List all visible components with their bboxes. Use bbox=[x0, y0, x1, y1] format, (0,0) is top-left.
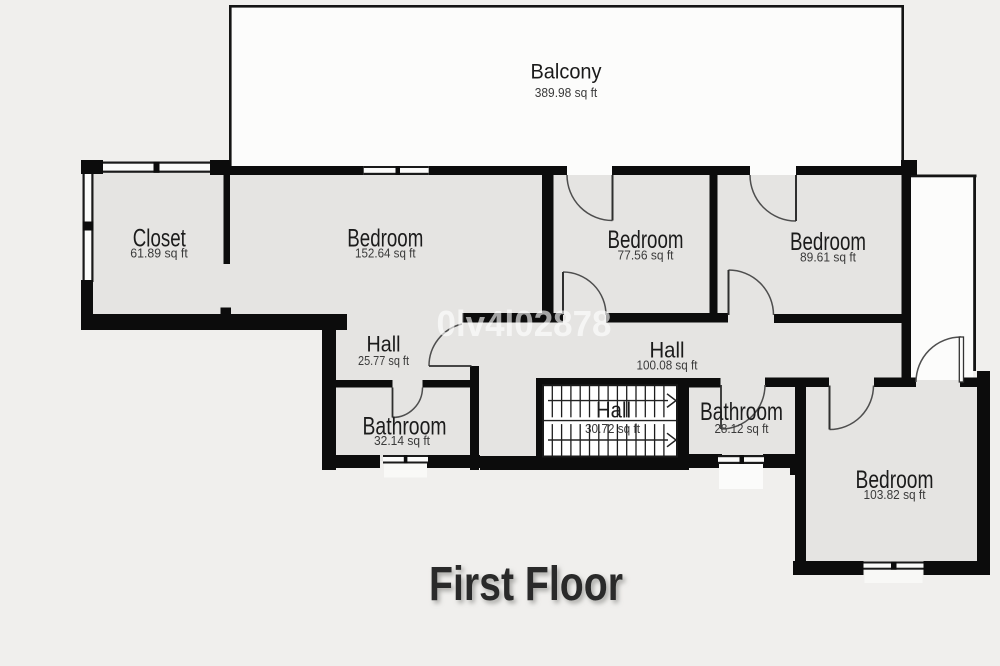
svg-text:0lv4l02878: 0lv4l02878 bbox=[437, 303, 612, 344]
svg-text:28.12 sq ft: 28.12 sq ft bbox=[715, 421, 769, 436]
svg-text:100.08 sq ft: 100.08 sq ft bbox=[637, 358, 698, 373]
svg-text:389.98 sq ft: 389.98 sq ft bbox=[535, 85, 598, 100]
svg-text:Hall: Hall bbox=[596, 398, 631, 423]
svg-text:77.56 sq ft: 77.56 sq ft bbox=[618, 248, 674, 263]
svg-text:Balcony: Balcony bbox=[531, 60, 602, 84]
svg-text:30.72 sq ft: 30.72 sq ft bbox=[585, 421, 640, 436]
svg-text:89.61 sq ft: 89.61 sq ft bbox=[800, 250, 856, 265]
svg-text:25.77 sq ft: 25.77 sq ft bbox=[358, 353, 409, 368]
svg-text:32.14 sq ft: 32.14 sq ft bbox=[374, 433, 430, 448]
svg-text:61.89 sq ft: 61.89 sq ft bbox=[130, 246, 188, 261]
svg-text:103.82 sq ft: 103.82 sq ft bbox=[864, 487, 926, 502]
svg-text:152.64 sq ft: 152.64 sq ft bbox=[355, 246, 416, 261]
svg-text:First Floor: First Floor bbox=[429, 558, 623, 611]
